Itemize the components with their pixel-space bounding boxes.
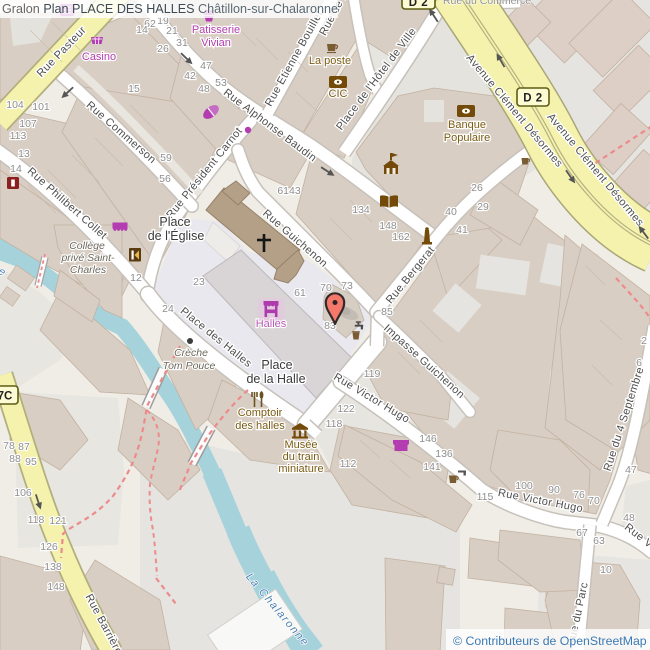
- svg-text:26: 26: [157, 43, 169, 55]
- svg-text:78: 78: [3, 440, 15, 452]
- svg-text:12: 12: [130, 272, 142, 284]
- svg-text:90: 90: [548, 484, 560, 496]
- svg-text:10: 10: [600, 564, 612, 576]
- svg-text:48: 48: [198, 83, 210, 95]
- svg-text:D 2: D 2: [409, 0, 428, 9]
- svg-text:53: 53: [215, 77, 227, 89]
- svg-text:du train: du train: [283, 451, 320, 463]
- svg-text:6: 6: [636, 357, 642, 369]
- svg-text:de l'Église: de l'Église: [148, 228, 205, 243]
- svg-text:14: 14: [136, 24, 148, 36]
- svg-text:106: 106: [14, 487, 32, 499]
- svg-text:CIC: CIC: [329, 88, 348, 100]
- svg-text:Collège: Collège: [69, 240, 105, 252]
- svg-text:miniature: miniature: [278, 463, 323, 475]
- svg-text:88: 88: [9, 453, 21, 465]
- svg-text:24: 24: [162, 303, 174, 315]
- svg-text:Charles: Charles: [70, 264, 107, 276]
- svg-text:119: 119: [364, 368, 381, 380]
- svg-text:Rue du Commerce: Rue du Commerce: [443, 0, 531, 7]
- svg-text:7C: 7C: [0, 391, 12, 403]
- svg-text:112: 112: [340, 458, 357, 470]
- svg-text:14: 14: [10, 163, 22, 175]
- svg-text:162: 162: [392, 231, 410, 243]
- svg-text:85: 85: [381, 306, 393, 318]
- svg-text:87: 87: [18, 441, 30, 453]
- svg-text:138: 138: [44, 561, 62, 573]
- svg-text:59: 59: [160, 152, 172, 164]
- svg-text:21: 21: [166, 25, 178, 37]
- svg-text:des halles: des halles: [235, 420, 285, 432]
- svg-text:31: 31: [176, 37, 188, 49]
- svg-text:126: 126: [40, 541, 58, 553]
- svg-text:122: 122: [337, 403, 355, 415]
- svg-text:134: 134: [352, 204, 370, 216]
- svg-text:148: 148: [47, 581, 65, 593]
- svg-text:D 2: D 2: [523, 93, 542, 105]
- svg-text:47: 47: [200, 60, 212, 72]
- svg-text:121: 121: [49, 515, 67, 527]
- svg-text:67: 67: [576, 527, 588, 539]
- svg-text:40: 40: [445, 206, 457, 218]
- svg-text:23: 23: [193, 276, 205, 288]
- svg-text:63: 63: [593, 535, 605, 547]
- svg-text:6143: 6143: [277, 185, 301, 197]
- svg-text:Vivian: Vivian: [201, 37, 231, 49]
- svg-text:Place: Place: [159, 215, 190, 229]
- svg-text:Crèche: Crèche: [174, 347, 208, 359]
- svg-text:115: 115: [477, 491, 494, 503]
- svg-text:101: 101: [32, 101, 50, 113]
- svg-text:107: 107: [19, 118, 37, 130]
- svg-text:© Contributeurs de OpenStreetM: © Contributeurs de OpenStreetMap: [453, 634, 647, 648]
- svg-text:141: 141: [423, 461, 441, 473]
- svg-text:13: 13: [18, 148, 30, 160]
- svg-text:56: 56: [159, 173, 171, 185]
- svg-text:Tom Pouce: Tom Pouce: [163, 360, 216, 372]
- svg-text:privé Saint-: privé Saint-: [60, 252, 115, 264]
- svg-text:61: 61: [294, 287, 306, 299]
- svg-text:70: 70: [588, 495, 600, 507]
- svg-text:Place: Place: [261, 358, 292, 372]
- svg-text:Gralon Plan PLACE DES HALLES C: Gralon Plan PLACE DES HALLES Châtillon-s…: [2, 2, 338, 16]
- svg-text:Comptoir: Comptoir: [238, 407, 283, 419]
- svg-text:76: 76: [573, 489, 585, 501]
- svg-text:113: 113: [10, 130, 27, 142]
- svg-text:100: 100: [515, 480, 533, 492]
- svg-text:136: 136: [435, 448, 453, 460]
- svg-text:Banque: Banque: [448, 119, 486, 131]
- svg-text:42: 42: [184, 70, 196, 82]
- svg-text:Populaire: Populaire: [444, 132, 490, 144]
- svg-text:104: 104: [6, 99, 24, 111]
- svg-text:73: 73: [341, 280, 353, 292]
- svg-text:2: 2: [641, 335, 647, 347]
- svg-text:26: 26: [471, 182, 483, 194]
- svg-text:de la Halle: de la Halle: [246, 372, 305, 386]
- svg-text:70: 70: [320, 282, 332, 294]
- svg-text:Patisserie: Patisserie: [192, 24, 240, 36]
- svg-text:48: 48: [623, 512, 635, 524]
- svg-text:Musée: Musée: [284, 439, 317, 451]
- svg-text:95: 95: [25, 456, 37, 468]
- svg-text:41: 41: [456, 224, 468, 236]
- svg-text:La poste: La poste: [309, 55, 351, 67]
- svg-text:29: 29: [477, 201, 489, 213]
- svg-text:Casino: Casino: [82, 51, 116, 63]
- svg-text:47: 47: [625, 464, 637, 476]
- svg-text:15: 15: [128, 83, 140, 95]
- svg-text:146: 146: [419, 433, 437, 445]
- svg-text:118: 118: [28, 514, 45, 526]
- svg-text:118: 118: [326, 418, 343, 430]
